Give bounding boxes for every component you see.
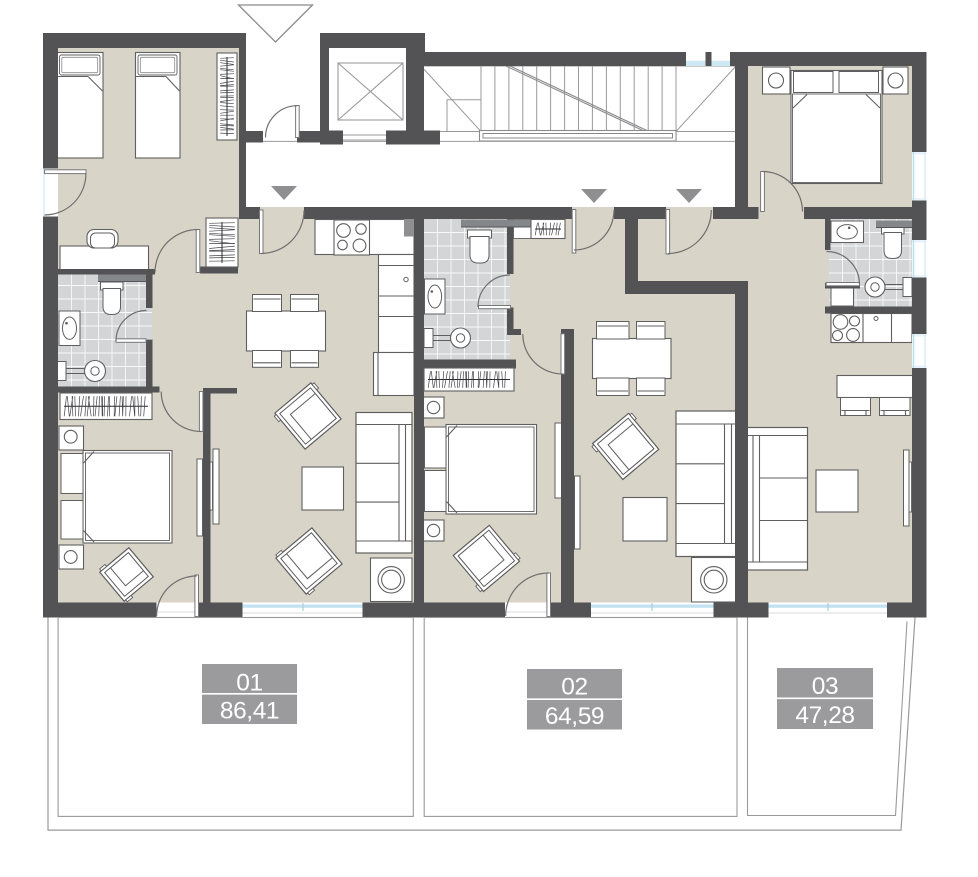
svg-text:01: 01 [236,670,262,697]
svg-text:47,28: 47,28 [795,702,854,729]
svg-text:86,41: 86,41 [220,698,279,725]
svg-text:02: 02 [561,674,587,701]
svg-text:03: 03 [812,673,838,700]
svg-text:64,59: 64,59 [545,703,604,730]
